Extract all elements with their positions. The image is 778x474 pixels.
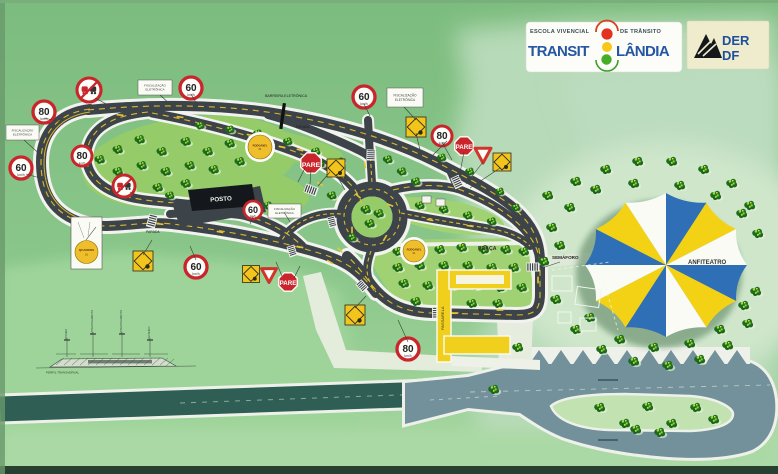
svg-text:SEMÁFORO: SEMÁFORO — [552, 254, 579, 260]
svg-text:km/h: km/h — [250, 214, 256, 218]
svg-text:PARE: PARE — [456, 144, 473, 151]
svg-text:km/h: km/h — [192, 272, 199, 276]
svg-text:km/h: km/h — [439, 141, 446, 145]
svg-text:PARE: PARE — [280, 280, 297, 287]
svg-text:ELETRÔNICA: ELETRÔNICA — [13, 132, 32, 137]
svg-text:km/h: km/h — [40, 117, 47, 121]
svg-text:DE TRÂNSITO: DE TRÂNSITO — [620, 28, 661, 35]
svg-text:60: 60 — [248, 205, 258, 215]
svg-text:PASSARELA: PASSARELA — [440, 306, 445, 330]
svg-text:ESTACIONAMENTO: ESTACIONAMENTO — [119, 310, 123, 334]
svg-text:ESTACIONAMENTO: ESTACIONAMENTO — [90, 310, 94, 334]
svg-text:km/h: km/h — [404, 354, 411, 358]
svg-text:km/h: km/h — [187, 93, 194, 97]
svg-text:PRAÇA: PRAÇA — [478, 246, 497, 252]
svg-text:ELETRÔNICA: ELETRÔNICA — [395, 97, 416, 102]
svg-text:CANTEIRO: CANTEIRO — [147, 327, 151, 340]
svg-text:QUADROS: QUADROS — [79, 248, 94, 252]
svg-text:km/h: km/h — [79, 161, 86, 165]
svg-text:ANFITEATRO: ANFITEATRO — [688, 260, 727, 266]
svg-text:DER: DER — [722, 33, 750, 48]
svg-text:PASSEIO: PASSEIO — [64, 329, 68, 340]
svg-text:BARREIRA ELETRÔNICA: BARREIRA ELETRÔNICA — [265, 93, 308, 98]
svg-text:PARE: PARE — [302, 162, 321, 169]
svg-text:PERFIL TRANSVERSAL: PERFIL TRANSVERSAL — [46, 371, 80, 375]
svg-text:PARADA: PARADA — [146, 230, 160, 234]
svg-text:ESCOLA VIVENCIAL: ESCOLA VIVENCIAL — [530, 29, 590, 35]
svg-text:DF: DF — [722, 48, 739, 63]
svg-text:TRANSIT: TRANSIT — [528, 43, 589, 60]
svg-text:ELETRÔNICA: ELETRÔNICA — [145, 87, 164, 92]
svg-text:LÂNDIA: LÂNDIA — [616, 42, 670, 60]
svg-text:FISCALIZAÇÃO: FISCALIZAÇÃO — [393, 92, 417, 97]
svg-text:PARADA: PARADA — [296, 125, 310, 129]
svg-text:km/h: km/h — [17, 173, 24, 177]
